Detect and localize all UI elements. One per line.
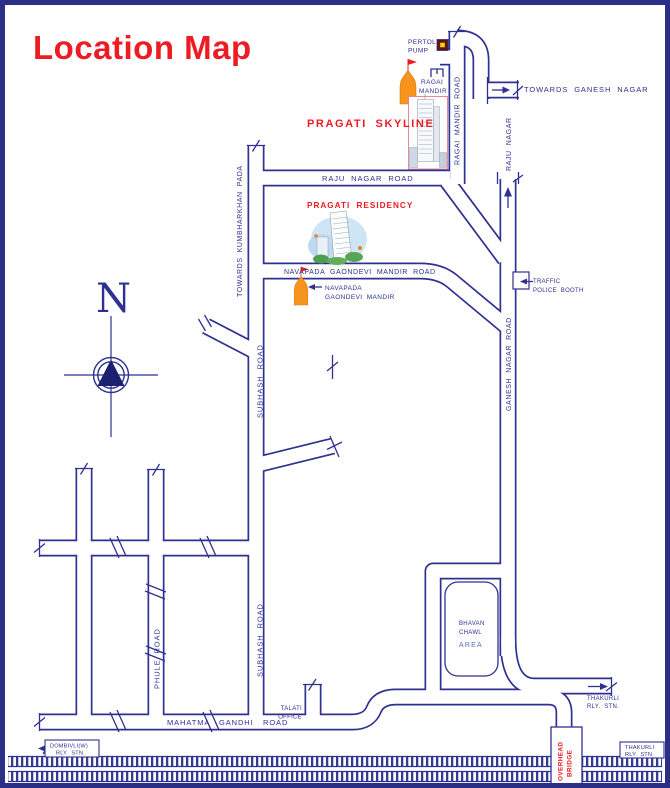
tick-subhash-stub-east — [327, 355, 338, 379]
label-thakurli-pointer-2: RLY. STN. — [587, 704, 619, 710]
page-title: Location Map — [33, 29, 252, 66]
road-label-ganesh-nagar-road: GANESH NAGAR ROAD — [506, 317, 513, 411]
overhead-bridge: OVERHEAD BRIDGE — [551, 727, 582, 787]
gate-icon — [431, 69, 443, 77]
location-map-canvas: N Location Map RAGAI MANDIR ROAD RAJU NA… — [0, 0, 670, 788]
thakurli-station-box: THAKURLI RLY. STN. — [620, 742, 664, 758]
label-pertol-pump-2: PUMP — [408, 48, 428, 55]
pragati-skyline-building — [409, 94, 448, 169]
label-ragai-mandir-1: RAGAI — [421, 79, 443, 86]
temple-flag-icon — [408, 59, 417, 65]
label-overhead-bridge-2: BRIDGE — [567, 749, 574, 777]
navapada-label-arrow-head — [308, 284, 315, 290]
label-bhavan-chawl-area: AREA — [459, 642, 483, 649]
label-pertol-pump-1: PERTOL — [408, 39, 436, 46]
label-navapada-mandir-1: NAVAPADA — [325, 285, 362, 292]
roads-surface-layer — [40, 31, 611, 741]
road-label-towards-ganesh-nagar: TOWARDS GANESH NAGAR — [524, 85, 648, 94]
road-label-raju-nagar-road: RAJU NAGAR ROAD — [322, 174, 414, 183]
road-label-towards-kumbharkhan-pada: TOWARDS KUMBHARKHAN PADA — [237, 165, 244, 297]
label-bhavan-chawl-1: BHAVAN — [459, 621, 485, 627]
label-dombivli-2: RLY. STN. — [56, 751, 85, 757]
compass: N — [64, 276, 158, 437]
roads-outline-layer — [40, 31, 611, 741]
road-label-ragai-mandir-road: RAGAI MANDIR ROAD — [455, 76, 462, 165]
road-label-gandhi: GANDHI — [219, 718, 254, 727]
bhavan-chawl-block — [445, 582, 498, 676]
road-label-subhash-road-upper: SUBHASH ROAD — [256, 344, 265, 418]
label-navapada-mandir-2: GAONDEVI MANDIR — [325, 294, 395, 301]
label-traffic-booth-1: TRAFFIC — [533, 279, 561, 285]
road-ticks — [34, 26, 617, 754]
road-label-navapada-gaondevi-mandir-road: NAVAPADA GAONDEVI MANDIR ROAD — [284, 269, 436, 276]
label-thakurli-box-2: RLY. STN. — [625, 752, 654, 758]
label-overhead-bridge-1: OVERHEAD — [558, 742, 565, 781]
label-bhavan-chawl-2: CHAWL — [459, 630, 482, 636]
label-dombivli-1: DOMBIVLI(W) — [50, 744, 88, 750]
location-map-page: N Location Map RAGAI MANDIR ROAD RAJU NA… — [0, 0, 670, 788]
dombivli-station-box: DOMBIVLI(W) RLY. STN. — [45, 740, 99, 757]
label-thakurli-pointer-1: THAKURLI — [587, 696, 619, 702]
pragati-residency-building — [308, 211, 367, 265]
label-pragati-skyline: PRAGATI SKYLINE — [307, 118, 434, 130]
label-talati-office-1: TALATI — [281, 706, 302, 712]
road-label-raju-nagar: RAJU NAGAR — [506, 117, 513, 171]
label-talati-office-2: OFFICE — [278, 715, 302, 721]
petrol-pump-icon — [437, 40, 448, 51]
road-label-phule-road: PHULE ROAD — [153, 628, 162, 689]
road-labels: RAGAI MANDIR ROAD RAJU NAGAR ROAD RAJU N… — [153, 76, 649, 727]
compass-north-label: N — [96, 276, 131, 322]
road-label-subhash-road-lower: SUBHASH ROAD — [256, 603, 265, 677]
label-pragati-residency: PRAGATI RESIDENCY — [307, 201, 413, 210]
compass-needle-icon — [98, 360, 125, 387]
label-ragai-mandir-2: MANDIR — [419, 88, 447, 95]
label-traffic-booth-2: POLICE BOOTH — [533, 288, 584, 294]
road-label-mahatma: MAHATMA — [167, 718, 210, 727]
label-thakurli-box-1: THAKURLI — [625, 745, 655, 751]
